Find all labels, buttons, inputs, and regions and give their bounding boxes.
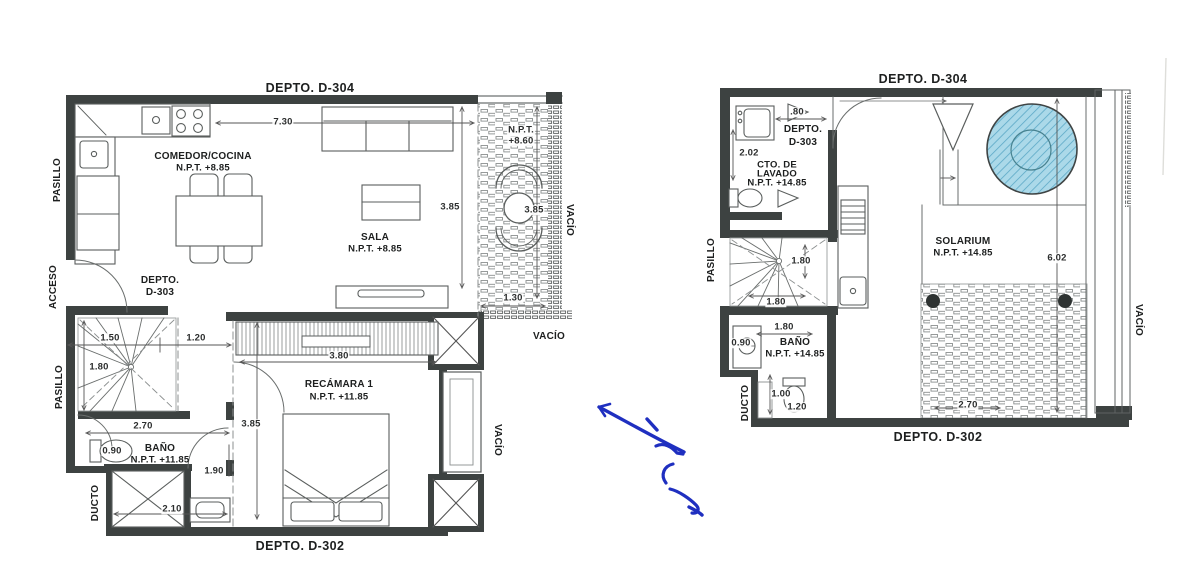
right-plan [720, 88, 1132, 427]
jacuzzi-icon [987, 104, 1077, 194]
grill-icon [841, 200, 865, 234]
vacio-right-label: VACÍO [492, 424, 502, 456]
acceso-label: ACCESO [49, 265, 59, 309]
right-unit-label-2: D-303 [789, 138, 817, 148]
dim-recamara-w: 3.80 [328, 351, 349, 361]
comedor-name-label: COMEDOR/COCINA [154, 152, 251, 162]
dim-terrace-w: 1.30 [502, 293, 523, 303]
dim-wc-w: 0.90 [101, 446, 122, 456]
coffee-table [362, 185, 420, 220]
deck-post-right [1058, 294, 1072, 308]
right-neighbor-bottom-label: DEPTO. D-302 [894, 431, 983, 444]
dim-stair-h: 1.80 [88, 362, 109, 372]
bano-name-label: BAÑO [145, 444, 175, 454]
solarium-name-label: SOLARIUM [936, 237, 991, 247]
dim-recamara-h: 3.85 [240, 419, 261, 429]
ducto-label: DUCTO [91, 485, 101, 521]
right-vacio-label: VACÍO [1133, 304, 1143, 336]
left-unit-label-1: DEPTO. [141, 276, 179, 286]
solarium-npt-label: N.P.T. +14.85 [933, 248, 992, 258]
terrace-npt2-label: +8.60 [507, 136, 534, 146]
recamara-npt-label: N.P.T. +11.85 [310, 392, 369, 402]
pasillo-top-label: PASILLO [53, 158, 63, 202]
dim-stair-run: 1.80 [790, 256, 811, 266]
right-ducto-label: DUCTO [741, 385, 751, 421]
right-bano-name-label: BAÑO [780, 338, 810, 348]
right-bano-npt-label: N.P.T. +14.85 [765, 349, 824, 359]
bano-npt-label: N.P.T. +11.85 [131, 455, 190, 465]
bedroom-door-arc [234, 362, 284, 412]
dim-bano-w: 2.70 [132, 421, 153, 431]
terrace-npt1-label: N.P.T. [507, 125, 535, 135]
sala-npt-label: N.P.T. +8.85 [348, 244, 402, 254]
dim-bano-w-r: 1.80 [773, 322, 794, 332]
sala-name-label: SALA [361, 233, 389, 243]
left-plan [66, 92, 572, 536]
dim-door-w: 1.90 [203, 466, 224, 476]
vanity-sink-icon [190, 498, 230, 522]
dining-table [176, 174, 262, 263]
dim-solarium-h: 6.02 [1046, 253, 1067, 263]
pen-annotation-icon [599, 404, 702, 515]
deck-post-left [926, 294, 940, 308]
right-unit-label-1: DEPTO. [784, 125, 822, 135]
right-door-swing [833, 97, 946, 148]
lavado-npt-label: N.P.T. +14.85 [747, 178, 806, 188]
dim-hall-w: 1.20 [185, 333, 206, 343]
pasillo-bottom-label: PASILLO [55, 365, 65, 409]
bar-sink-icon [840, 277, 866, 305]
dim-bano-side: 0.90 [730, 338, 751, 348]
dim-terrace-h: 3.85 [523, 205, 544, 215]
dim-total-width: 7.30 [272, 117, 293, 127]
acceso-door-arc [75, 260, 127, 312]
scan-artifact [1163, 58, 1166, 175]
left-neighbor-top-label: DEPTO. D-304 [266, 82, 355, 95]
stove-icon [172, 106, 210, 136]
right-neighbor-top-label: DEPTO. D-304 [879, 73, 968, 86]
dim-shower-w: 2.10 [161, 504, 182, 514]
left-neighbor-bottom-label: DEPTO. D-302 [256, 540, 345, 553]
dim-lavado-h: 2.02 [738, 148, 759, 158]
washer-icon [736, 106, 774, 140]
left-unit-label-2: D-303 [146, 288, 174, 298]
lavado-toilet-icon [729, 189, 762, 207]
dim-stair-w: 1.50 [99, 333, 120, 343]
vacio-terrace-label: VACÍO [564, 204, 574, 236]
bed-icon [283, 414, 389, 526]
bath-door-arc [188, 428, 228, 468]
vacio-strip [1095, 90, 1131, 413]
tv-console [336, 286, 448, 308]
plan-linework [0, 0, 1200, 561]
grill-counter [838, 186, 868, 308]
skylight-triangle [933, 104, 973, 204]
right-pasillo-label: PASILLO [707, 238, 717, 282]
dim-toilet-w: 1.20 [786, 402, 807, 412]
dim-deck-w: 2.70 [957, 400, 978, 410]
dim-stair-w-r: 1.80 [765, 297, 786, 307]
dim-ducto-w: 1.00 [770, 389, 791, 399]
dim-sala-h: 3.85 [439, 202, 460, 212]
sofa-icon [322, 107, 453, 151]
floor-plan-sheet: DEPTO. D-304 DEPTO. D-302 PASILLO ACCESO… [0, 0, 1200, 561]
comedor-npt-label: N.P.T. +8.85 [176, 163, 230, 173]
dim-washer-w: .80 [789, 107, 805, 117]
recamara-name-label: RECÁMARA 1 [305, 380, 373, 390]
shower-icon [112, 471, 184, 527]
vacio-mid-label: VACÍO [533, 332, 565, 342]
